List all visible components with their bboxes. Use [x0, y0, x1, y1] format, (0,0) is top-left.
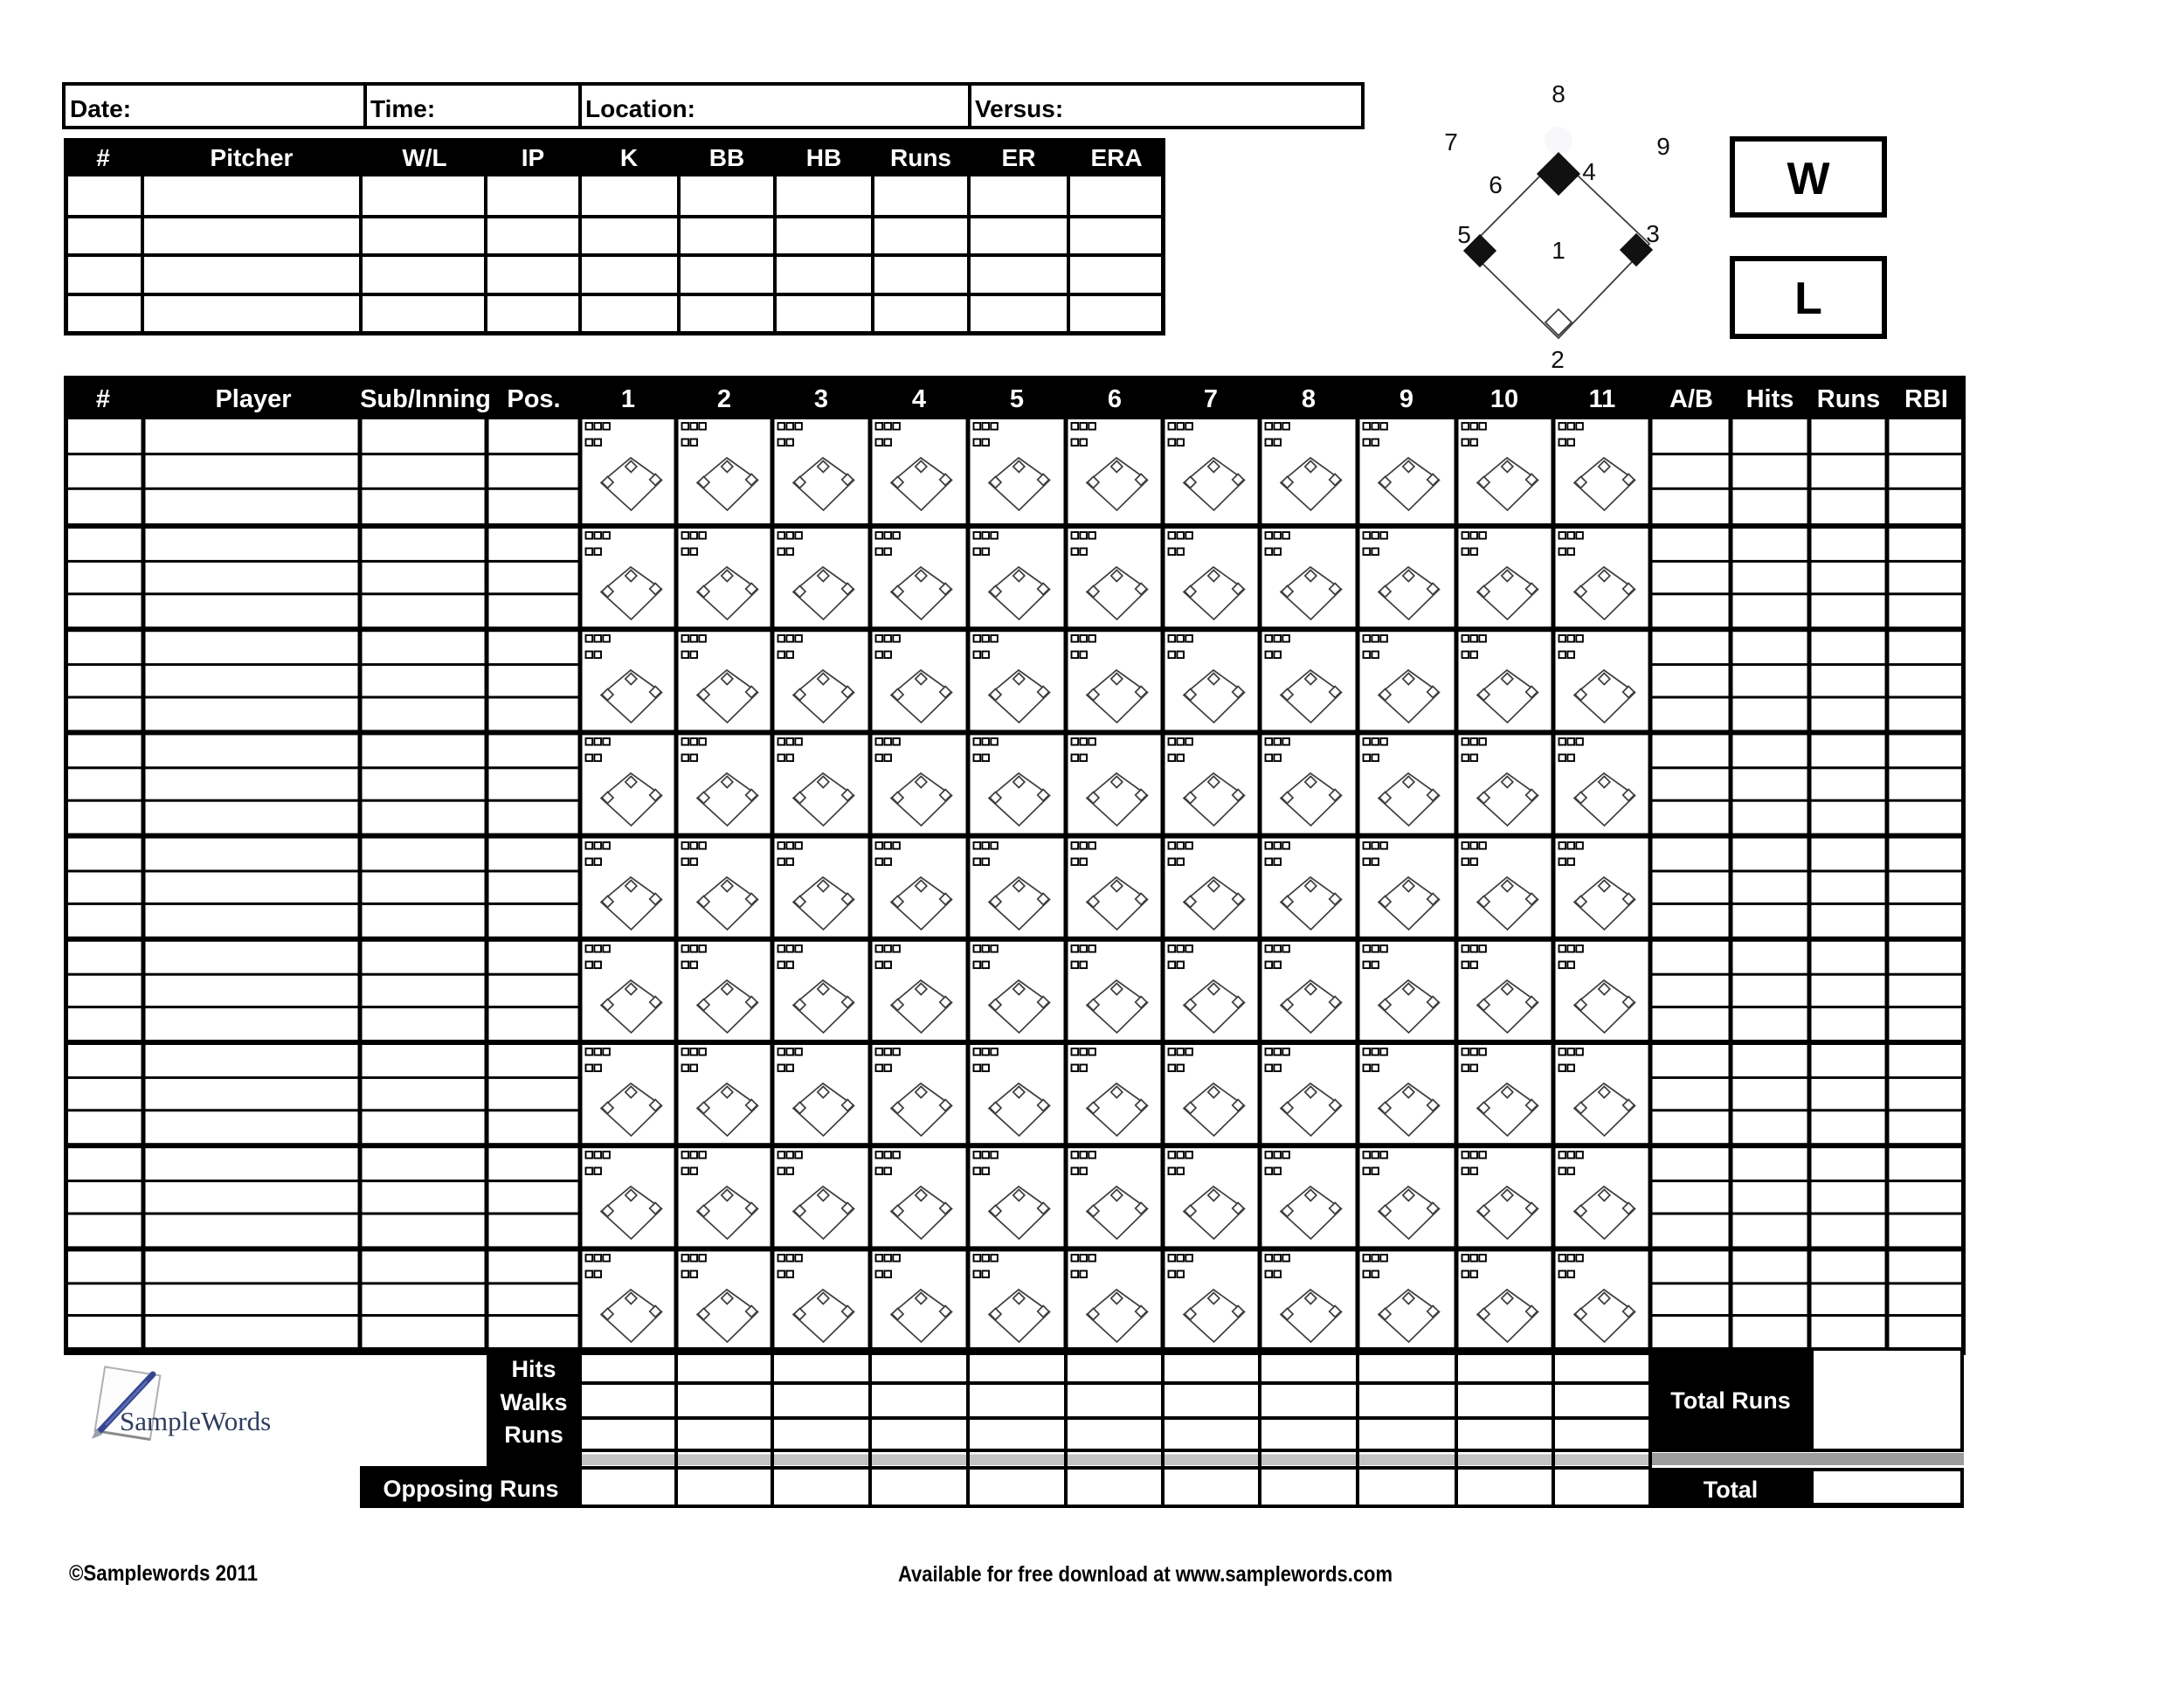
- svg-text:Time:: Time:: [370, 95, 435, 122]
- svg-text:SampleWords: SampleWords: [120, 1406, 271, 1436]
- svg-text:Location:: Location:: [585, 95, 695, 122]
- svg-text:1: 1: [621, 385, 635, 413]
- svg-text:Hits: Hits: [1746, 385, 1794, 413]
- svg-text:Date:: Date:: [70, 95, 131, 122]
- svg-text:4: 4: [1582, 158, 1596, 185]
- svg-text:5: 5: [1457, 221, 1471, 248]
- svg-text:2: 2: [1551, 346, 1565, 373]
- svg-text:6: 6: [1489, 171, 1503, 198]
- svg-text:3: 3: [814, 385, 828, 413]
- svg-text:BB: BB: [709, 144, 744, 171]
- svg-text:W: W: [1787, 154, 1830, 204]
- svg-text:Runs: Runs: [1817, 385, 1881, 413]
- svg-text:Total Runs: Total Runs: [1670, 1387, 1791, 1414]
- svg-text:W/L: W/L: [402, 144, 446, 171]
- svg-text:5: 5: [1010, 385, 1024, 413]
- svg-text:#: #: [96, 385, 110, 413]
- svg-text:Pos.: Pos.: [507, 385, 560, 413]
- svg-text:IP: IP: [522, 144, 544, 171]
- svg-text:9: 9: [1656, 133, 1670, 160]
- svg-text:10: 10: [1490, 385, 1518, 413]
- svg-text:L: L: [1794, 273, 1822, 324]
- svg-text:Runs: Runs: [890, 144, 951, 171]
- svg-text:7: 7: [1204, 385, 1218, 413]
- svg-text:1: 1: [1552, 237, 1565, 264]
- svg-text:Player: Player: [215, 385, 291, 413]
- svg-text:#: #: [96, 144, 110, 171]
- svg-text:9: 9: [1400, 385, 1413, 413]
- svg-text:Available for free download at: Available for free download at www.sampl…: [898, 1562, 1393, 1587]
- svg-text:3: 3: [1646, 220, 1660, 247]
- svg-text:Total: Total: [1704, 1477, 1759, 1503]
- svg-text:11: 11: [1589, 385, 1616, 413]
- svg-text:Runs: Runs: [504, 1422, 563, 1448]
- svg-text:Hits: Hits: [511, 1356, 556, 1382]
- svg-text:8: 8: [1302, 385, 1316, 413]
- svg-text:8: 8: [1552, 80, 1565, 107]
- svg-text:RBI: RBI: [1904, 385, 1948, 413]
- svg-text:HB: HB: [806, 144, 841, 171]
- svg-text:Versus:: Versus:: [975, 95, 1063, 122]
- svg-text:7: 7: [1444, 128, 1458, 156]
- svg-text:©Samplewords 2011: ©Samplewords 2011: [69, 1561, 258, 1586]
- svg-text:K: K: [620, 144, 638, 171]
- svg-text:A/B: A/B: [1669, 385, 1713, 413]
- svg-text:Pitcher: Pitcher: [211, 144, 294, 171]
- svg-text:Walks: Walks: [500, 1389, 567, 1415]
- svg-text:2: 2: [717, 385, 731, 413]
- svg-text:ERA: ERA: [1090, 144, 1142, 171]
- svg-text:6: 6: [1108, 385, 1122, 413]
- svg-text:Sub/Inning: Sub/Inning: [360, 385, 491, 413]
- svg-text:Opposing Runs: Opposing Runs: [384, 1476, 559, 1502]
- svg-text:4: 4: [912, 385, 926, 413]
- svg-text:ER: ER: [1002, 144, 1036, 171]
